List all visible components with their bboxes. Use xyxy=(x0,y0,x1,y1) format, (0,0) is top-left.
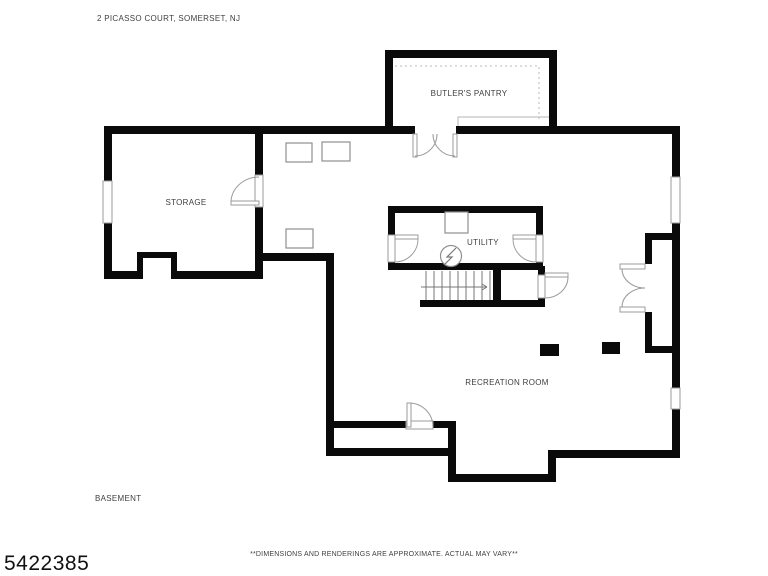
landing-door xyxy=(538,273,568,298)
storage-door xyxy=(231,175,263,207)
cabinet-1 xyxy=(286,143,312,162)
utility-left-door xyxy=(388,235,418,262)
water-heater-icon xyxy=(441,246,462,267)
doors xyxy=(231,134,645,429)
window-right-lower xyxy=(671,388,680,409)
support-columns xyxy=(540,342,620,356)
room-label-recreation-room: RECREATION ROOM xyxy=(447,378,567,387)
disclaimer-text: **DIMENSIONS AND RENDERINGS ARE APPROXIM… xyxy=(0,551,768,558)
closet-double-door xyxy=(620,264,645,312)
staircase xyxy=(421,271,490,300)
room-label-utility: UTILITY xyxy=(443,238,523,247)
fixtures xyxy=(286,142,468,267)
floor-plan-drawing xyxy=(0,0,768,576)
floor-label: BASEMENT xyxy=(95,494,141,503)
pantry-double-door xyxy=(413,134,457,157)
room-label-storage: STORAGE xyxy=(146,198,226,207)
window-left xyxy=(103,181,112,223)
cabinet-3 xyxy=(286,229,313,248)
basement-floor-plan: 2 PICASSO COURT, SOMERSET, NJ BUTLER'S P… xyxy=(0,0,768,576)
walls xyxy=(104,50,680,482)
cabinet-2 xyxy=(322,142,350,161)
rec-room-bottom-door xyxy=(406,403,433,429)
pantry-counter xyxy=(458,117,550,127)
furnace-box xyxy=(445,212,468,233)
room-label-butlers-pantry: BUTLER'S PANTRY xyxy=(409,89,529,98)
address-label: 2 PICASSO COURT, SOMERSET, NJ xyxy=(97,14,240,23)
window-right-upper xyxy=(671,177,680,223)
